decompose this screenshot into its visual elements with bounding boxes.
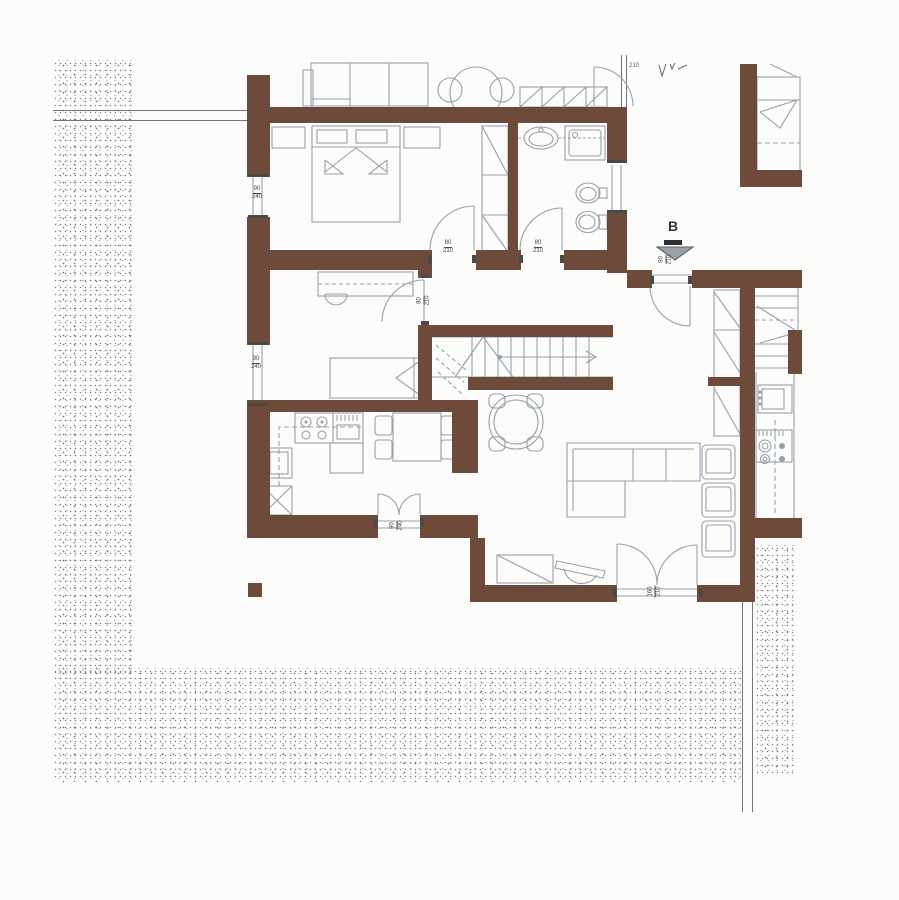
wall-unitb-bed-v: [740, 64, 757, 187]
wall-bath-west: [508, 123, 518, 252]
desk: [318, 272, 413, 296]
tv-sideboard: [497, 555, 553, 583]
wall-closet-stub: [708, 377, 740, 386]
wall-stairs-north: [432, 325, 613, 337]
jamb: [428, 255, 432, 263]
wall-hall-ne-b: [692, 270, 802, 288]
label-bedroom-door: 80210: [437, 240, 459, 255]
label-bathroom-door: 80210: [527, 240, 549, 255]
dining-table: [489, 394, 543, 451]
unitb-kitchen: [756, 372, 794, 518]
wall-stairs-south: [468, 377, 613, 390]
study-window: [253, 345, 262, 405]
jamb: [607, 160, 627, 163]
hall-door-swing: [650, 275, 692, 326]
tv: [555, 561, 605, 584]
partial-top-label: 210: [629, 63, 639, 69]
nightstand-right: [404, 127, 440, 148]
label-study-door: 80210: [417, 290, 432, 312]
single-bed: [330, 358, 422, 398]
jamb: [374, 519, 378, 527]
wall-unitb-stairs-pillar: [788, 330, 802, 374]
corner-sofa: [567, 443, 700, 517]
jamb: [560, 255, 564, 263]
wall-bath-east-upper: [607, 107, 627, 163]
armchair-1: [702, 445, 735, 479]
wall-left-b: [247, 217, 270, 345]
jamb: [421, 321, 429, 325]
wall-unitb-kitchen-south: [740, 518, 802, 538]
jamb: [650, 276, 654, 284]
kitchen-counter-return: [330, 443, 363, 473]
bathroom-window: [612, 165, 621, 212]
wall-hall-east: [740, 288, 755, 585]
armchair-2: [702, 483, 735, 517]
wall-kitchen-north: [247, 400, 478, 412]
jamb: [248, 174, 268, 177]
wall-left-a: [247, 75, 270, 177]
unitb-single-bed: [757, 64, 800, 171]
kitchen-counter-stove: [295, 413, 363, 443]
shower: [565, 126, 605, 160]
wardrobe-master: [482, 126, 508, 252]
label-kitchen-french-door: 90240: [390, 515, 405, 537]
furniture-layer: [0, 0, 899, 900]
label-bedroom-window: 90240: [246, 186, 268, 201]
level-mark-icon: [659, 63, 687, 76]
wall-hall-north-b: [476, 250, 521, 270]
wall-hall-north-a: [247, 250, 430, 270]
label-hall-door: 90210: [659, 249, 674, 271]
jamb: [248, 403, 268, 406]
jamb: [421, 274, 429, 278]
wall-south-a: [470, 585, 617, 602]
jamb: [699, 589, 703, 597]
jamb: [607, 210, 627, 213]
floor-plan-sheet: 90240 90240 80210 80210 80210 90210 1602…: [0, 0, 899, 900]
wall-hall-ne-a: [627, 270, 652, 288]
jamb: [613, 589, 617, 597]
wall-study-east-b: [418, 325, 432, 402]
toilet: [576, 212, 607, 233]
label-entry-door: 160210: [648, 581, 663, 603]
wall-south-b: [697, 585, 755, 602]
wall-kitchen-divider: [452, 400, 478, 473]
bidet: [576, 183, 607, 203]
wall-hall-north-c: [564, 250, 627, 270]
hall-closet: [714, 290, 740, 436]
wall-unitb-bed-h: [740, 170, 802, 187]
nightstand-left: [272, 127, 305, 148]
wall-step: [470, 538, 485, 585]
jamb: [420, 519, 424, 527]
jamb: [248, 342, 268, 345]
label-study-window: 90240: [245, 356, 267, 371]
double-bed: [312, 126, 400, 222]
wall-kitchen-south-e: [420, 515, 478, 538]
wall-kitchen-south-w: [247, 515, 378, 538]
pillar-southwest: [248, 583, 262, 597]
jamb: [248, 215, 268, 218]
wall-top: [247, 107, 627, 123]
jamb: [519, 255, 523, 263]
kitchen-table: [375, 413, 458, 461]
upper-unit-sofa: [303, 63, 428, 106]
section-label-b: B: [668, 218, 678, 234]
jamb: [688, 276, 692, 284]
jamb: [472, 255, 476, 263]
armchair-3: [702, 521, 735, 557]
